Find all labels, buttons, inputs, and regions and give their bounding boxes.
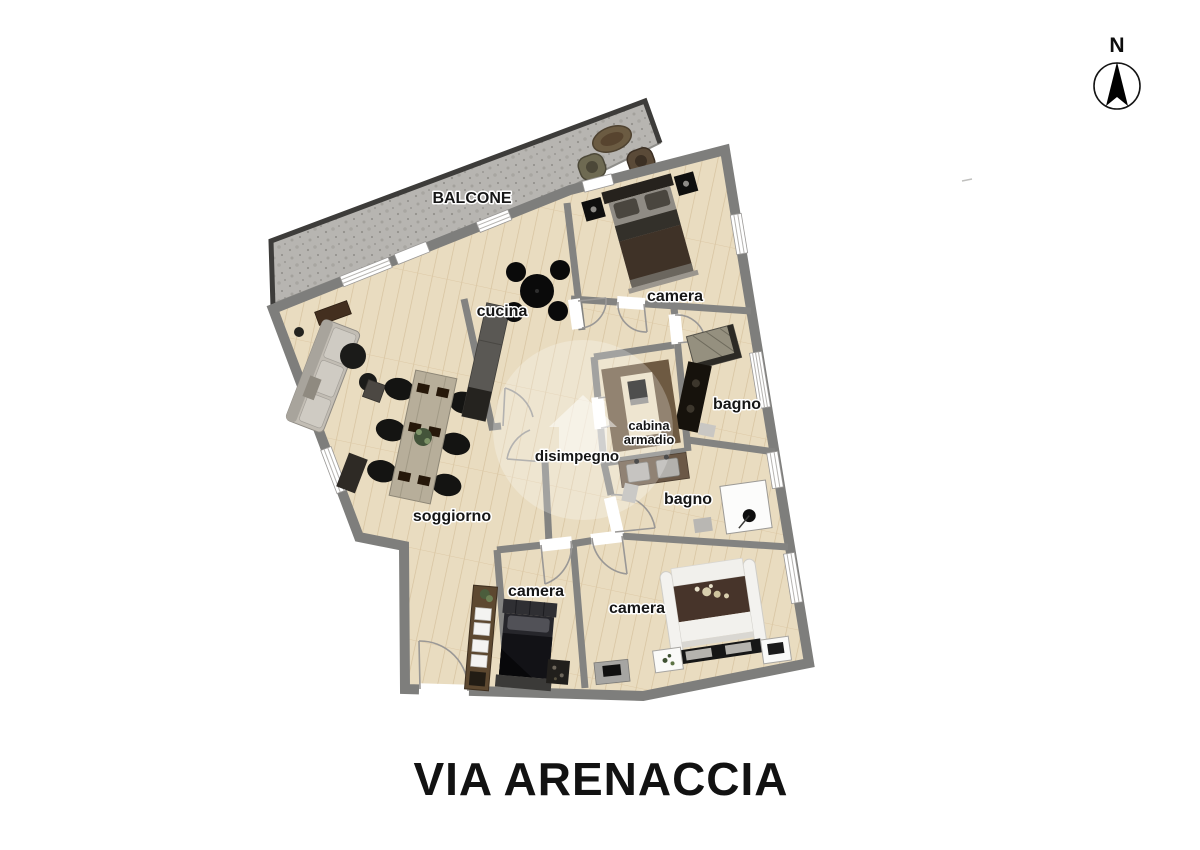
room-label-camera-nord: camera [647,288,703,305]
room-label-armadio: armadio [624,432,675,447]
bath-mat [693,517,713,533]
stray-mark [962,179,972,181]
compass-north-label: N [1109,34,1124,57]
room-label-camera-grande: camera [609,600,665,617]
rug [546,659,570,685]
tv-stand [594,659,630,684]
room-label-balcone: BALCONE [432,190,511,207]
rug [760,636,791,664]
room-label-disimpegno: disimpegno [535,448,619,465]
street-title: VIA ARENACCIA [413,753,788,805]
armchair [340,343,366,369]
room-label-bagno-sud: bagno [664,491,712,508]
room-label-camera-piccola: camera [508,583,564,600]
room-label-soggiorno: soggiorno [413,508,491,525]
room-label-bagno-nord: bagno [713,396,761,413]
rug [653,647,684,673]
room-label-cabina: cabina [628,418,670,433]
floorplan-page: BALCONE cucina camera bagno cabina armad… [0,0,1200,850]
shower [720,480,772,534]
room-label-cucina: cucina [477,303,528,320]
floor-lamp [294,327,304,337]
north-compass-icon: N [1094,34,1140,109]
compass-needle [1106,62,1128,106]
floorplan-drawing: BALCONE cucina camera bagno cabina armad… [0,0,1200,850]
